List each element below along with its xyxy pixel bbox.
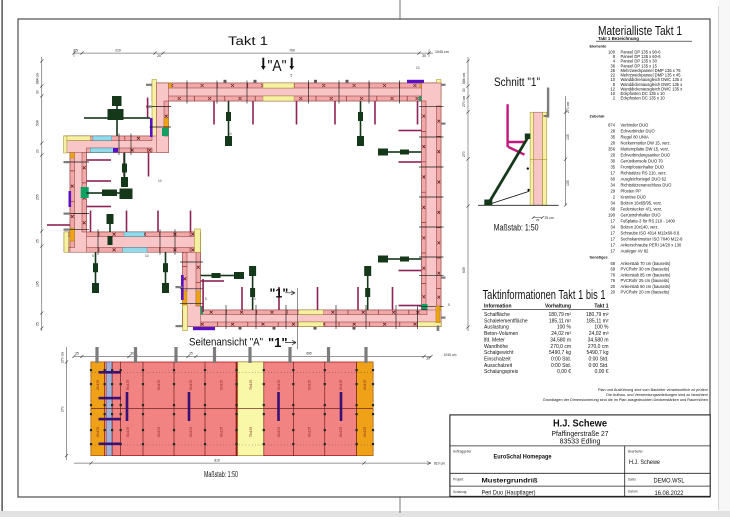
svg-text:30: 30 xyxy=(462,88,466,92)
svg-text:Wandhöhe: Wandhöhe xyxy=(484,344,508,350)
svg-text:270 cm: 270 cm xyxy=(462,96,466,107)
svg-text:90x135: 90x135 xyxy=(219,427,223,438)
svg-text:35: 35 xyxy=(610,165,615,170)
svg-text:Ankerstab 85 cm (bauseits): Ankerstab 85 cm (bauseits) xyxy=(621,272,671,277)
svg-text:Maßstab: 1:50: Maßstab: 1:50 xyxy=(494,222,539,232)
svg-text:270 cm: 270 cm xyxy=(566,102,570,113)
svg-text:EuroSchal Homepage: EuroSchal Homepage xyxy=(494,454,552,461)
svg-text:1045 cm: 1045 cm xyxy=(435,50,449,54)
svg-text:Takt 1: Takt 1 xyxy=(594,304,608,310)
svg-text:28: 28 xyxy=(610,141,615,146)
svg-text:Ankerschraube PERI 14/20 x 130: Ankerschraube PERI 14/20 x 130 xyxy=(621,243,682,248)
svg-text:100 %: 100 % xyxy=(557,325,572,331)
svg-text:Pfaffingerstraße 27: Pfaffingerstraße 27 xyxy=(552,431,609,438)
svg-text:"1": "1" xyxy=(268,335,288,350)
svg-text:Vorhaltung: Vorhaltung xyxy=(545,304,571,310)
svg-text:135: 135 xyxy=(566,180,570,186)
svg-text:68: 68 xyxy=(610,261,615,266)
svg-text:Elemente: Elemente xyxy=(590,44,607,48)
svg-text:Ankerstab 50 cm (bauseits): Ankerstab 50 cm (bauseits) xyxy=(621,284,671,289)
svg-text:34,580 m: 34,580 m xyxy=(588,337,609,343)
svg-text:Auftraggeber: Auftraggeber xyxy=(453,450,472,454)
svg-text:17: 17 xyxy=(610,249,615,254)
svg-text:90x135: 90x135 xyxy=(219,380,223,391)
svg-text:25 cm: 25 cm xyxy=(545,216,554,220)
svg-text:H.J. Schewe: H.J. Schewe xyxy=(553,418,607,430)
svg-text:DEMO.WSL: DEMO.WSL xyxy=(654,477,685,484)
svg-text:PVCRohr 30 cm (bauseits): PVCRohr 30 cm (bauseits) xyxy=(621,267,670,272)
svg-text:Ausleger AV 82: Ausleger AV 82 xyxy=(621,249,650,254)
svg-text:20: 20 xyxy=(36,149,40,153)
svg-text:83533 Edling: 83533 Edling xyxy=(560,439,601,446)
svg-text:Verbinder DUO: Verbinder DUO xyxy=(621,123,649,128)
svg-text:Zubehör: Zubehör xyxy=(590,115,606,119)
svg-text:5: 5 xyxy=(448,303,450,307)
svg-text:180,79 m²: 180,79 m² xyxy=(586,312,609,318)
svg-text:34: 34 xyxy=(610,201,615,206)
svg-text:270: 270 xyxy=(61,406,65,412)
svg-text:Eckverbinder DUO: Eckverbinder DUO xyxy=(621,129,655,134)
svg-text:Schalfläche: Schalfläche xyxy=(484,312,510,318)
svg-text:90x135: 90x135 xyxy=(277,380,281,391)
svg-text:10: 10 xyxy=(158,179,162,183)
svg-text:28: 28 xyxy=(610,153,615,158)
svg-text:90x135: 90x135 xyxy=(126,427,130,438)
svg-text:10: 10 xyxy=(228,132,232,136)
svg-text:Schalelementfläche: Schalelementfläche xyxy=(484,318,528,324)
svg-text:210: 210 xyxy=(115,49,121,53)
svg-text:185,11 m²: 185,11 m² xyxy=(586,318,608,324)
svg-text:90x135: 90x135 xyxy=(307,380,311,391)
svg-text:H.J. Schewe: H.J. Schewe xyxy=(629,459,660,466)
svg-text:34: 34 xyxy=(610,225,615,230)
svg-text:17: 17 xyxy=(610,171,615,176)
svg-text:Ausgleichsriegel DUO 62: Ausgleichsriegel DUO 62 xyxy=(621,177,667,182)
svg-text:Taktinformationen Takt 1 bis: Taktinformationen Takt 1 bis 1 xyxy=(483,288,606,302)
svg-text:PVCRohr 25 cm (bauseits): PVCRohr 25 cm (bauseits) xyxy=(621,278,670,283)
svg-text:Pfosten PP: Pfosten PP xyxy=(621,189,642,194)
svg-text:45x135: 45x135 xyxy=(96,380,100,391)
svg-text:90x135: 90x135 xyxy=(339,380,343,391)
svg-text:Auslastung: Auslastung xyxy=(484,325,509,331)
svg-text:24,02 m³: 24,02 m³ xyxy=(551,331,571,337)
svg-text:Richtstütze RS 210, verz.: Richtstütze RS 210, verz. xyxy=(621,171,667,176)
svg-text:45x135: 45x135 xyxy=(363,380,367,391)
svg-text:255: 255 xyxy=(36,194,40,200)
svg-text:25: 25 xyxy=(36,239,40,243)
svg-text:25: 25 xyxy=(75,352,79,356)
svg-text:Bolzen 16x65/95, verz.: Bolzen 16x65/95, verz. xyxy=(621,201,663,206)
svg-text:356: 356 xyxy=(608,147,616,152)
svg-text:135: 135 xyxy=(566,134,570,140)
svg-text:10: 10 xyxy=(145,254,149,258)
svg-text:Mutternplatte DW 15, verz.: Mutternplatte DW 15, verz. xyxy=(621,147,670,152)
svg-text:17: 17 xyxy=(610,243,615,248)
svg-text:Sonstiges: Sonstiges xyxy=(590,256,608,260)
svg-text:684 cm: 684 cm xyxy=(462,73,466,84)
svg-text:25: 25 xyxy=(189,352,193,356)
svg-text:185,11 m²: 185,11 m² xyxy=(549,318,571,324)
svg-text:35: 35 xyxy=(610,135,615,140)
svg-text:Takt 1 Bezeichnung: Takt 1 Bezeichnung xyxy=(598,36,639,41)
svg-text:Datei:: Datei: xyxy=(628,478,636,482)
svg-text:0:00 Std.: 0:00 Std. xyxy=(551,356,571,362)
svg-text:810 cm: 810 cm xyxy=(434,462,445,466)
svg-text:Schraube ISO 4014 M12x60-8.8.: Schraube ISO 4014 M12x60-8.8. xyxy=(621,231,681,236)
svg-text:16.08.2022: 16.08.2022 xyxy=(655,490,684,497)
svg-text:Beton-Volumen: Beton-Volumen xyxy=(484,331,518,337)
svg-text:25: 25 xyxy=(36,322,40,326)
svg-text:Sechskantmutter ISO 7040 M12-8: Sechskantmutter ISO 7040 M12-8 xyxy=(621,237,684,242)
svg-text:0,00 €: 0,00 € xyxy=(595,369,609,375)
svg-text:270,0 cm: 270,0 cm xyxy=(550,344,571,350)
svg-text:180,79 m²: 180,79 m² xyxy=(548,312,571,318)
svg-text:34: 34 xyxy=(610,183,615,188)
svg-text:195: 195 xyxy=(36,281,40,287)
svg-text:20: 20 xyxy=(157,54,161,58)
svg-text:5490,7 kg: 5490,7 kg xyxy=(587,350,609,356)
svg-text:Seitenansicht "A": Seitenansicht "A" xyxy=(189,337,263,349)
svg-text:Bolzen 20x140, verz.: Bolzen 20x140, verz. xyxy=(621,225,659,230)
svg-text:24,02 m³: 24,02 m³ xyxy=(589,331,609,337)
svg-text:29: 29 xyxy=(610,189,615,194)
svg-text:20: 20 xyxy=(610,284,615,289)
svg-text:Die Aufbau- und Verwendungsanl: Die Aufbau- und Verwendungsanleitungen s… xyxy=(606,393,708,397)
svg-text:90x135: 90x135 xyxy=(189,380,193,391)
svg-text:270 cm: 270 cm xyxy=(61,352,65,363)
svg-text:90x135: 90x135 xyxy=(277,427,281,438)
svg-text:90x135: 90x135 xyxy=(339,427,343,438)
svg-text:75x135: 75x135 xyxy=(249,380,253,391)
svg-text:30: 30 xyxy=(422,54,426,58)
svg-text:10: 10 xyxy=(252,297,256,301)
svg-text:Information: Information xyxy=(484,304,512,310)
svg-text:Mustergrundriß: Mustergrundriß xyxy=(482,477,538,484)
svg-text:190: 190 xyxy=(608,213,616,218)
svg-text:Plan und Ausführung sind vom B: Plan und Ausführung sind vom Bauleiter v… xyxy=(598,388,708,392)
svg-text:639: 639 xyxy=(462,267,466,273)
svg-text:874: 874 xyxy=(608,123,616,128)
svg-text:10: 10 xyxy=(416,66,420,70)
svg-text:Frontpfostenhalter DUO: Frontpfostenhalter DUO xyxy=(621,165,664,170)
svg-text:Einschalzeit: Einschalzeit xyxy=(484,356,511,362)
svg-text:Peri Duo (Hauptlager): Peri Duo (Hauptlager) xyxy=(482,490,536,497)
svg-text:Riegel 80 UNIA: Riegel 80 UNIA xyxy=(621,135,649,140)
svg-text:Federstecker 4/1, verz.: Federstecker 4/1, verz. xyxy=(621,207,663,212)
svg-text:20: 20 xyxy=(610,290,615,295)
svg-text:lfd. Meter: lfd. Meter xyxy=(484,337,505,343)
svg-text:684 cm: 684 cm xyxy=(36,73,40,84)
svg-text:75x135: 75x135 xyxy=(249,427,253,438)
svg-text:0,00 €: 0,00 € xyxy=(557,369,571,375)
svg-text:Bearbeiter: Bearbeiter xyxy=(628,450,644,454)
svg-text:Eckverbindungsanker DUO: Eckverbindungsanker DUO xyxy=(621,153,671,158)
svg-text:Grundlagen der Dimensionierung: Grundlagen der Dimensionierung sind die … xyxy=(543,398,708,402)
svg-text:0:00 Std.: 0:00 Std. xyxy=(588,356,608,362)
svg-text:30: 30 xyxy=(130,352,134,356)
svg-text:Gerüstrohrhalter DUO: Gerüstrohrhalter DUO xyxy=(621,213,661,218)
svg-text:17: 17 xyxy=(610,219,615,224)
svg-text:270: 270 xyxy=(462,151,466,157)
svg-text:76: 76 xyxy=(610,272,615,277)
svg-text:30: 30 xyxy=(426,356,430,360)
svg-text:760: 760 xyxy=(289,49,295,53)
svg-text:665: 665 xyxy=(306,352,312,356)
svg-text:Schalgewicht: Schalgewicht xyxy=(484,350,514,356)
svg-text:Takt 1: Takt 1 xyxy=(228,36,268,48)
svg-text:90x135: 90x135 xyxy=(126,380,130,391)
svg-text:"1": "1" xyxy=(270,286,289,300)
svg-text:90x135: 90x135 xyxy=(307,427,311,438)
svg-text:90x135: 90x135 xyxy=(157,427,161,438)
svg-text:Ausschalzeit: Ausschalzeit xyxy=(484,363,513,369)
svg-text:Datum:: Datum: xyxy=(628,490,638,494)
svg-text:534: 534 xyxy=(36,120,40,126)
svg-text:17: 17 xyxy=(610,231,615,236)
svg-text:45x135: 45x135 xyxy=(96,427,100,438)
svg-text:68: 68 xyxy=(610,267,615,272)
svg-text:PVCRohr 20 cm (bauseits): PVCRohr 20 cm (bauseits) xyxy=(621,290,670,295)
svg-text:Maßstab: 1:50: Maßstab: 1:50 xyxy=(204,470,238,479)
svg-text:68: 68 xyxy=(610,207,615,212)
svg-text:17: 17 xyxy=(610,237,615,242)
svg-text:810: 810 xyxy=(214,459,220,463)
svg-text:0:00 Std.: 0:00 Std. xyxy=(588,363,608,369)
svg-text:30: 30 xyxy=(36,90,40,94)
svg-text:90x135: 90x135 xyxy=(157,380,161,391)
svg-text:Ankerstab 70 cm (bauseits): Ankerstab 70 cm (bauseits) xyxy=(621,261,671,266)
svg-text:25: 25 xyxy=(74,49,78,53)
svg-text:"A": "A" xyxy=(268,58,287,75)
svg-text:Eckpfosten DC 135 x 10: Eckpfosten DC 135 x 10 xyxy=(621,96,666,101)
svg-text:90x135: 90x135 xyxy=(189,427,193,438)
svg-text:0:00 Std.: 0:00 Std. xyxy=(551,363,571,369)
svg-text:45x135: 45x135 xyxy=(363,427,367,438)
svg-text:Projekt:: Projekt: xyxy=(453,478,464,482)
svg-text:60: 60 xyxy=(610,177,615,182)
svg-text:Schalungspreis: Schalungspreis xyxy=(484,369,519,375)
svg-text:1045 cm: 1045 cm xyxy=(444,353,457,357)
svg-text:Nockenmutter DW 15, verz.: Nockenmutter DW 15, verz. xyxy=(621,141,671,146)
svg-text:5: 5 xyxy=(205,297,207,301)
svg-text:Schnitt "1": Schnitt "1" xyxy=(494,77,540,89)
svg-text:Gerüstkonsole DUO 70: Gerüstkonsole DUO 70 xyxy=(621,159,664,164)
svg-text:5: 5 xyxy=(92,254,94,258)
svg-text:5490,7 kg: 5490,7 kg xyxy=(549,350,571,356)
svg-text:76: 76 xyxy=(610,278,615,283)
svg-text:28: 28 xyxy=(610,129,615,134)
svg-text:270,0 cm: 270,0 cm xyxy=(588,344,609,350)
svg-text:100 %: 100 % xyxy=(594,325,609,331)
svg-text:30: 30 xyxy=(610,159,615,164)
svg-text:Richtstützenanschluss DUO: Richtstützenanschluss DUO xyxy=(621,183,672,188)
svg-text:34,580 m: 34,580 m xyxy=(550,337,571,343)
svg-text:5: 5 xyxy=(291,74,293,78)
svg-text:Schalung:: Schalung: xyxy=(453,490,467,494)
svg-text:Fußplatte-3 für RS 210 - 1400: Fußplatte-3 für RS 210 - 1400 xyxy=(621,219,676,224)
svg-text:Kranöse DUO: Kranöse DUO xyxy=(621,195,646,200)
